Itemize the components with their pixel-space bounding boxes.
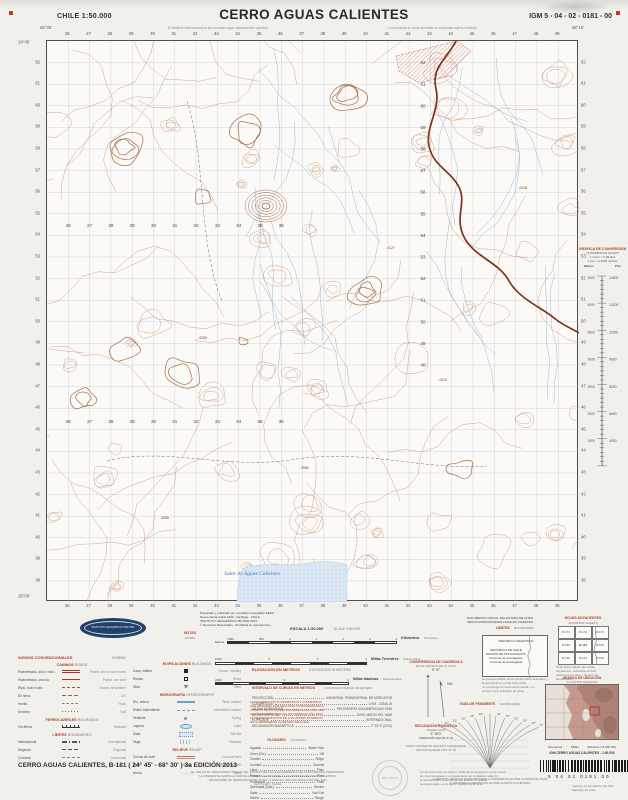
legend-item-es: Pavimentado, una vía: [18, 678, 55, 682]
grid-label: 30: [150, 603, 155, 608]
svg-text:29: 29: [130, 419, 136, 424]
imprint: Santiago de Chile: [572, 788, 596, 792]
grid-label: 33: [214, 603, 219, 608]
map-sheet: CHILE 1:50.000 CERRO AGUAS CALIENTES IGM…: [0, 0, 628, 800]
grid-label: 48: [534, 603, 539, 608]
topographic-map-graphic: 2626272728282929303031313232333334343535…: [47, 41, 579, 602]
svg-text:28: 28: [108, 223, 114, 228]
legend-item-en: River, stream: [202, 700, 241, 704]
location-km-label: Kilómetros: [548, 745, 562, 749]
grid-label: 41: [384, 603, 389, 608]
svg-text:52: 52: [420, 276, 426, 281]
limits-title-en: BOUNDARIES: [514, 626, 534, 630]
grid-label: 60: [581, 102, 586, 107]
svg-text:2500: 2500: [587, 385, 595, 389]
grid-label: 38: [321, 603, 326, 608]
svg-text:. 3980: . 3980: [299, 466, 309, 470]
grid-label: 55: [35, 210, 40, 215]
grid-label: 55: [581, 210, 586, 215]
slope-paragraph: Su aproximación se obtiene midiendo la s…: [420, 770, 530, 786]
datum-rows: PROYECCIÓNUNIVERSAL TRANSVERSAL DE MERCA…: [252, 696, 392, 730]
grid-label: 34: [235, 31, 240, 36]
grid-label: 35: [257, 31, 262, 36]
legend-item: SalarSalt flat: [133, 730, 241, 738]
legend-item-es: Vega: [133, 740, 170, 744]
svg-text:4000: 4000: [587, 303, 595, 307]
legend-symbol-bint: [55, 741, 87, 743]
svg-text:2000: 2000: [587, 412, 595, 416]
svg-text:30°: 30°: [497, 712, 501, 716]
legend-item: Mina⚒Mine: [133, 683, 241, 691]
svg-text:25°: 25°: [506, 714, 510, 718]
svg-text:5°: 5°: [540, 723, 543, 727]
stamp-label: BIBLIOTECA: [378, 766, 402, 790]
legend-item-es: Pavimentado, dos o más vías: [18, 670, 55, 674]
svg-text:★: ★: [426, 674, 431, 680]
svg-text:31: 31: [172, 419, 178, 424]
glossary: GLOSARIO GLOSSARY AguadaWater HoleCerro …: [250, 728, 324, 800]
legend-item-es: Ruinas: [133, 677, 170, 681]
legend-item-es: Río, estero: [133, 700, 170, 704]
svg-text:27: 27: [87, 419, 93, 424]
legend-symbol-trail: [55, 711, 87, 712]
legend-item-es: Casa, edificio: [133, 669, 170, 673]
grid-label: 47: [35, 383, 40, 388]
legend-item: VegaMeadow: [133, 738, 241, 746]
scale-metros-label: Metros: [215, 640, 224, 644]
scale-bar-row: Metros100050001234Kilómetros Kilometers: [215, 626, 475, 644]
svg-text:8200: 8200: [609, 385, 617, 389]
legend-symbol-rail: [55, 725, 87, 728]
slope-fan-graphic: 30°30°25°25°20°20°15°15°10°10°5°5°: [432, 710, 548, 772]
legend-item: SenderoTrail: [18, 708, 126, 716]
grid-label: 57: [581, 167, 586, 172]
grid-label: 37: [299, 31, 304, 36]
legend-column-2: EDIFICACIONES BUILDINGSCasa, edificioHou…: [133, 660, 241, 777]
legend-item: RuinasRuins: [133, 675, 241, 683]
chile-admin-lines: REPÚBLICA DE CHILEREGIÓN DE ANTOFAGASTAP…: [484, 648, 528, 664]
legend-item-es: De tierra: [18, 694, 55, 698]
legend-symbol-spr: [170, 717, 202, 720]
rail-symbol-icon: [62, 725, 80, 728]
datum-row: DECLINACIÓN MAGNÉTICA2° 18' E (2013): [252, 724, 392, 730]
legend-item-en: Intermittent stream: [202, 708, 241, 712]
scale-unit-label: Kilómetros Kilometers: [401, 626, 438, 644]
svg-text:28: 28: [108, 419, 114, 424]
location-mi-label: Millas: [571, 745, 579, 749]
grid-label: 35: [257, 603, 262, 608]
igm-logo: INSTITUTO GEOGRÁFICO MILITAR: [80, 618, 146, 638]
legend-symbol-cont: [170, 756, 202, 759]
grid-label: 27: [86, 31, 91, 36]
grid-label: 56: [35, 189, 40, 194]
grid-label: 25°00': [18, 594, 30, 599]
legend-item: Río, esteroRiver, stream: [133, 698, 241, 706]
cont-symbol-icon: [177, 756, 195, 759]
svg-text:26: 26: [66, 223, 72, 228]
edge-note: El deslinde internacional ha sido trazad…: [168, 26, 268, 30]
grid-label: 32: [193, 31, 198, 36]
legend-item: RegionalRegional: [18, 746, 126, 754]
admin-line: Comuna de Antofagasta: [484, 660, 528, 664]
riv-symbol-icon: [177, 701, 195, 702]
legend-item-es: Ripio, todo el año: [18, 686, 55, 690]
svg-text:. 4086: . 4086: [159, 516, 169, 520]
svg-text:57: 57: [420, 168, 426, 173]
legend-item: Pavimentado, dos o más víasPaved, two or…: [18, 668, 126, 676]
library-stamp: BIBLIOTECA: [372, 760, 408, 796]
svg-text:. 4265: . 4265: [197, 336, 207, 340]
grid-label: 27: [86, 603, 91, 608]
svg-text:3500: 3500: [587, 331, 595, 335]
legend-group-header: EDIFICACIONES BUILDINGS: [133, 662, 241, 666]
svg-text:. 4418: . 4418: [517, 186, 527, 190]
legend-item-es: Comunal: [18, 756, 55, 760]
svg-text:36: 36: [279, 419, 285, 424]
svg-text:54: 54: [420, 233, 426, 238]
legend-item: HuellaTrack: [18, 700, 126, 708]
grid-label: 38: [581, 578, 586, 583]
legend-symbol-bld: [170, 669, 202, 673]
legend-item: InternacionalInternational: [18, 738, 126, 746]
svg-text:49: 49: [420, 341, 426, 346]
grid-label: 39: [342, 31, 347, 36]
grid-label: 40: [363, 31, 368, 36]
legend-symbol-gravel: [55, 687, 87, 688]
legend-item-en: Communal: [87, 756, 126, 760]
scale-bar-numbers: 100050001234: [227, 637, 397, 641]
svg-text:5°: 5°: [437, 723, 440, 727]
legend-item: De tierraDirt: [18, 692, 126, 700]
legend-item: Curvas de nivelContour lines: [133, 753, 241, 761]
svg-text:62: 62: [420, 60, 426, 65]
mine-symbol-icon: ⚒: [183, 685, 189, 689]
legend-item-en: International: [87, 740, 126, 744]
legend-group-header: RELIEVE RELIEF: [133, 748, 241, 752]
grid-label: 44: [448, 603, 453, 608]
adjoining-grid: B-171B-172B-173B-180B-181B-182B-190B-191…: [558, 626, 609, 665]
legend-items-1: CAMINOS ROADSPavimentado, dos o más vías…: [18, 663, 126, 762]
grid-label: 61: [35, 81, 40, 86]
grid-label: 62: [581, 59, 586, 64]
legend-symbol-breg: [55, 749, 87, 750]
svg-text:. 4310: . 4310: [437, 378, 447, 382]
grid-label: 34: [235, 603, 240, 608]
legend-items-2: EDIFICACIONES BUILDINGSCasa, edificioHou…: [133, 662, 241, 777]
slope-title-en: SLOPE GUIDE: [500, 702, 520, 706]
map-body: 2626272728282929303031313232333334343535…: [46, 40, 578, 601]
elev-interval-en: CONTOUR INTERVAL 50 METERS: [324, 686, 372, 690]
elev-title-en: ELEVATIONS IN METERS: [309, 668, 351, 672]
grid-label: 45: [470, 603, 475, 608]
lake-symbol-icon: [180, 724, 192, 729]
legend-item-es: Internacional: [18, 740, 55, 744]
legend-item-en: Ruins: [202, 677, 241, 681]
grid-label: 29: [129, 603, 134, 608]
spr-symbol-icon: [184, 717, 187, 720]
vega-symbol-icon: [180, 740, 192, 744]
legend-symbol-lake: [170, 724, 202, 729]
legend-item-en: House, building: [202, 669, 241, 673]
legend-item-en: Mine: [202, 685, 241, 689]
grid-label: 36: [278, 31, 283, 36]
grid-label: 49: [555, 603, 560, 608]
limits-footnote: La representación de los límites interna…: [482, 677, 548, 685]
grid-label: 44: [35, 448, 40, 453]
legend-item-es: Sendero: [18, 710, 55, 714]
adjoining-sheets-block: HOJAS ADYACENTES ADJOINING SHEETS B-171B…: [556, 616, 610, 681]
legend-group-header: LÍMITES BOUNDARIES: [18, 733, 126, 737]
grid-label: 38: [321, 31, 326, 36]
grid-label: 28: [108, 603, 113, 608]
svg-text:51: 51: [420, 298, 426, 303]
grid-label: 57: [35, 167, 40, 172]
grid-label: 45: [35, 426, 40, 431]
grid-label: 68°30': [40, 25, 52, 30]
igm-product-line: IGM CERRO AGUAS CALIENTES - 1:50.000: [544, 751, 620, 755]
legend-item-en: Paved, one lane: [87, 678, 126, 682]
legend-item-en: Lake: [202, 724, 241, 728]
svg-text:14800: 14800: [609, 276, 619, 280]
elev-interval-es: INTERVALO DE CURVAS EN METROS: [252, 686, 315, 690]
legend-symbol-ruin: [170, 677, 202, 681]
legend-item-en: Gravel, all weather: [87, 686, 126, 690]
legend-symbol-salar: [170, 732, 202, 737]
bint-symbol-icon: [62, 741, 80, 743]
glossary-title: GLOSARIO: [267, 738, 286, 742]
grid-label: 56: [581, 189, 586, 194]
svg-text:29: 29: [130, 223, 136, 228]
legend-symbol-riv: [170, 701, 202, 702]
sheet-code: IGM 5 - 04 - 02 - 0181 - 00: [529, 13, 612, 20]
argentina-label: REPÚBLICA ARGENTINA: [485, 639, 547, 643]
svg-text:31: 31: [172, 223, 178, 228]
legend-item-es: Regional: [18, 748, 55, 752]
legend-column-1: SIGNOS CONVENCIONALES LEGEND CAMINOS ROA…: [18, 655, 126, 762]
svg-text:20°: 20°: [514, 716, 518, 720]
barcode: [540, 760, 628, 772]
grid-label: 39: [35, 556, 40, 561]
legend-symbol-bcom: [55, 757, 87, 758]
grid-label: 38: [35, 578, 40, 583]
grid-label: 28: [108, 31, 113, 36]
gravel-symbol-icon: [62, 687, 80, 688]
edge-note: La toponimia de zonas limítrofes se encu…: [388, 26, 477, 30]
grid-label: 41: [581, 513, 586, 518]
conversion-graph: GRÁFICA DE CONVERSIÓN CONVERSION GRAPH 1…: [578, 247, 627, 478]
grid-label: 42: [406, 603, 411, 608]
svg-text:58: 58: [420, 147, 426, 152]
legend-item-en: Track: [87, 702, 126, 706]
svg-text:60: 60: [420, 103, 426, 108]
grid-label: 26: [65, 603, 70, 608]
legend-item: VertienteSpring: [133, 714, 241, 722]
slope-para-line: sexagesimales, en el sector medido de la…: [420, 782, 530, 786]
adjoining-footnote: Nota: Para adquirir las cartas adyacente…: [556, 665, 610, 673]
conversion-ruler: 4500148004000131003500115003000980025008…: [578, 268, 627, 473]
svg-text:34: 34: [236, 419, 242, 424]
svg-text:10°: 10°: [444, 721, 448, 725]
grid-label: 50: [35, 318, 40, 323]
grid-label: 60: [35, 102, 40, 107]
grid-label: 40: [35, 534, 40, 539]
svg-text:20°: 20°: [462, 716, 466, 720]
grid-label: 51: [35, 297, 40, 302]
grid-label: 44: [448, 31, 453, 36]
legend-group-header: CAMINOS ROADS: [18, 663, 126, 667]
legend-item-es: Curvas de nivel: [133, 755, 170, 759]
grid-label: 46: [491, 603, 496, 608]
grid-label: 54: [581, 232, 586, 237]
svg-text:36: 36: [279, 223, 285, 228]
bld-symbol-icon: [184, 669, 188, 673]
legend-item-es: Mina: [133, 685, 170, 689]
track-symbol-icon: [62, 703, 80, 704]
svg-text:3000: 3000: [587, 358, 595, 362]
grid-label: 43: [35, 470, 40, 475]
legend-item-en: Salt flat: [202, 732, 241, 736]
grid-label: 30: [150, 31, 155, 36]
svg-text:50: 50: [420, 319, 426, 324]
grid-label: 61: [581, 81, 586, 86]
barcode-digits: 5 04 02 0181 00: [548, 774, 611, 779]
grid-label: 41: [384, 31, 389, 36]
road2-symbol-icon: [62, 670, 80, 673]
location-scale: ESCALA 1:5.000.000: [588, 745, 616, 749]
svg-text:59: 59: [420, 125, 426, 130]
grid-label: 31: [171, 31, 176, 36]
svg-text:9800: 9800: [609, 358, 617, 362]
svg-text:15°: 15°: [453, 719, 457, 723]
svg-text:30: 30: [151, 223, 157, 228]
grid-label: 47: [512, 31, 517, 36]
grid-label: 43: [427, 603, 432, 608]
svg-text:6600: 6600: [609, 412, 617, 416]
legend-title: SIGNOS CONVENCIONALES: [18, 655, 72, 660]
svg-text:32: 32: [194, 419, 200, 424]
glossary-row: SierraRange: [250, 796, 324, 800]
legend-group-header: HIDROGRAFÍA HYDROGRAPHY: [133, 693, 241, 697]
legend-item: Casa, edificioHouse, building: [133, 667, 241, 675]
location-map-graphic: [545, 684, 619, 740]
svg-text:53: 53: [420, 255, 426, 260]
svg-text:26: 26: [66, 419, 72, 424]
legend-item-en: Paved, two or more lanes: [87, 670, 126, 674]
center-note: EL IGM ES EL ORGANISMO OFICIAL DEL ESTAD…: [168, 770, 368, 786]
salar-symbol-icon: [179, 732, 193, 737]
grid-label: 24°45': [18, 40, 30, 45]
grid-label: 58: [581, 146, 586, 151]
grid-label: 59: [35, 124, 40, 129]
grid-label: 49: [35, 340, 40, 345]
svg-text:48: 48: [420, 363, 426, 368]
legend-symbol-vega: [170, 740, 202, 744]
svg-text:33: 33: [215, 223, 221, 228]
grid-label: 47: [512, 603, 517, 608]
grid-label: 48: [534, 31, 539, 36]
svg-text:NM: NM: [447, 682, 452, 686]
svg-text:61: 61: [420, 82, 426, 87]
grid-label: 39: [581, 556, 586, 561]
legend-item-en: Trail: [87, 710, 126, 714]
trail-symbol-icon: [62, 711, 80, 712]
svg-text:10°: 10°: [531, 721, 535, 725]
legend-symbol-ist: [170, 710, 202, 711]
grid-label: 58: [35, 146, 40, 151]
grid-label: 32: [193, 603, 198, 608]
svg-text:27: 27: [87, 223, 93, 228]
svg-text:35: 35: [257, 419, 263, 424]
grid-label: 45: [470, 31, 475, 36]
svg-text:. 4127: . 4127: [385, 246, 395, 250]
legend-item: Ripio, todo el añoGravel, all weather: [18, 684, 126, 692]
legend-item-en: Dirt: [87, 694, 126, 698]
ist-symbol-icon: [177, 710, 195, 711]
legend-item-en: Spring: [202, 716, 241, 720]
legend-item: Vía férreaRailroad: [18, 723, 126, 731]
grid-label: 36: [278, 603, 283, 608]
grid-label: 33: [214, 31, 219, 36]
svg-text:30: 30: [151, 419, 157, 424]
elevation-block: ELEVACIÓN EN METROS ELEVATIONS IN METERS…: [252, 658, 392, 730]
grid-label: 37: [299, 603, 304, 608]
svg-text:1500: 1500: [587, 439, 595, 443]
limits-block: LÍMITES BOUNDARIES REPÚBLICA ARGENTINA R…: [482, 616, 548, 693]
legend-symbol-mine: ⚒: [170, 685, 202, 689]
svg-text:56: 56: [420, 190, 426, 195]
legend-item-es: Vertiente: [133, 716, 170, 720]
grid-label: 48: [35, 362, 40, 367]
grid-label: 40: [581, 534, 586, 539]
grid-label: 26: [65, 31, 70, 36]
grid-label: 42: [35, 491, 40, 496]
svg-text:55: 55: [420, 211, 426, 216]
grid-label: 40: [363, 603, 368, 608]
igm-logo-text: INSTITUTO GEOGRÁFICO MILITAR: [84, 621, 142, 635]
svg-text:32: 32: [194, 223, 200, 228]
svg-text:4900: 4900: [609, 439, 617, 443]
grid-label: 29: [129, 31, 134, 36]
grid-label: 46: [35, 405, 40, 410]
grid-label: 54: [35, 232, 40, 237]
notes-heading: NOTAS NOTES: [184, 631, 196, 640]
legend-item-en: Regional: [87, 748, 126, 752]
location-diagram: GRÁFICA DE UBICACIÓN LOCATION DIAGRAM Ki…: [544, 676, 620, 756]
legend-item-es: Huella: [18, 702, 55, 706]
legend-group-header: FERROCARRILES RAILROADS: [18, 718, 126, 722]
grid-label: 49: [555, 31, 560, 36]
grid-label: 62: [35, 59, 40, 64]
legend-symbol-road2: [55, 670, 87, 673]
limits-title: LÍMITES: [496, 626, 510, 630]
svg-text:30°: 30°: [479, 712, 483, 716]
edition-line: CERRO AGUAS CALIENTES, B-181 ( 24° 45' -…: [18, 762, 237, 769]
glossary-title-en: GLOSSARY: [290, 738, 306, 742]
grid-label: 43: [427, 31, 432, 36]
road1-symbol-icon: [62, 679, 80, 680]
bcom-symbol-icon: [62, 757, 80, 758]
adjoining-title-en: ADJOINING SHEETS: [556, 621, 610, 625]
legend-symbol-road1: [55, 679, 87, 680]
svg-text:34: 34: [236, 223, 242, 228]
legend-item: Pavimentado, una víaPaved, one lane: [18, 676, 126, 684]
grid-label: 46: [491, 31, 496, 36]
svg-text:25°: 25°: [470, 714, 474, 718]
grid-label: 42: [406, 31, 411, 36]
legend-item-es: Laguna: [133, 724, 170, 728]
grid-label: 68°15': [572, 25, 584, 30]
legend-item-en: Meadow: [202, 740, 241, 744]
